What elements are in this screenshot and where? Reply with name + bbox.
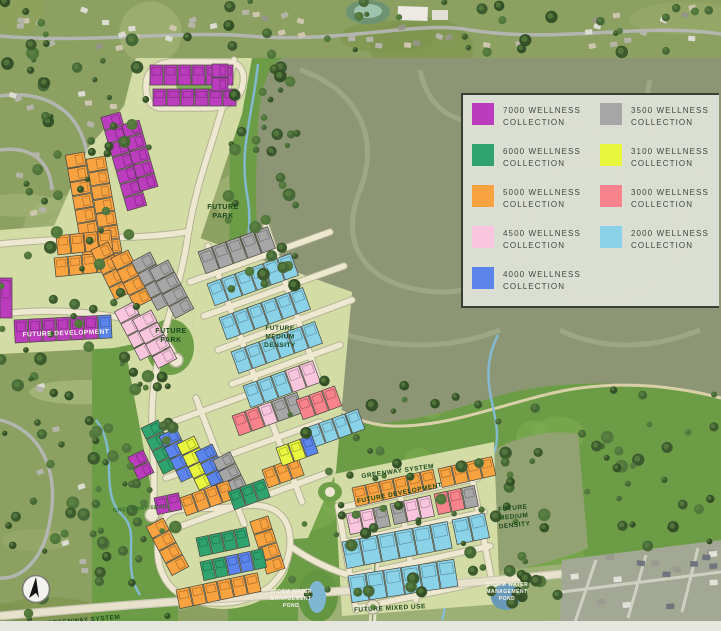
legend-label: COLLECTION [503,281,581,293]
legend-label: COLLECTION [503,199,581,211]
legend-label: 3100 WELLNESS [631,146,709,158]
legend-swatch-3000 [600,185,622,207]
legend-label: COLLECTION [503,158,581,170]
legend-item-2000: 2000 WELLNESSCOLLECTION [600,226,719,267]
legend-swatch-2000 [600,226,622,248]
bottom-margin [0,621,721,631]
legend-label: COLLECTION [503,117,581,129]
legend-label: 7000 WELLNESS [503,105,581,117]
legend-panel: 7000 WELLNESSCOLLECTION 6000 WELLNESSCOL… [461,93,719,308]
legend-label: COLLECTION [503,240,581,252]
legend-item-3100: 3100 WELLNESSCOLLECTION [600,144,719,185]
legend-swatch-3100 [600,144,622,166]
legend-item-4500: 4500 WELLNESSCOLLECTION [472,226,600,267]
map-label: FUTUREMEDIUMDENSITY [497,503,531,530]
legend-item-4000: 4000 WELLNESSCOLLECTION [472,267,600,308]
legend-label: 3000 WELLNESS [631,187,709,199]
legend-label: 4500 WELLNESS [503,228,581,240]
legend-swatch-4000 [472,267,494,289]
legend-swatch-3500 [600,103,622,125]
legend-swatch-5000 [472,185,494,207]
legend-swatch-7000 [472,103,494,125]
legend-label: 4000 WELLNESS [503,269,581,281]
north-arrow-icon [20,573,52,605]
legend-label: COLLECTION [631,158,709,170]
legend-label: 5000 WELLNESS [503,187,581,199]
legend-item-7000: 7000 WELLNESSCOLLECTION [472,103,600,144]
legend-label: 3500 WELLNESS [631,105,709,117]
legend-swatch-6000 [472,144,494,166]
legend-label: 2000 WELLNESS [631,228,709,240]
legend-label: 6000 WELLNESS [503,146,581,158]
legend-label: COLLECTION [631,240,709,252]
legend-label: COLLECTION [631,117,709,129]
legend-item-6000: 6000 WELLNESSCOLLECTION [472,144,600,185]
legend-item-5000: 5000 WELLNESSCOLLECTION [472,185,600,226]
legend-label: COLLECTION [631,199,709,211]
legend-item-3500: 3500 WELLNESSCOLLECTION [600,103,719,144]
master-plan-screenshot: FUTUREPARKFUTUREPARKFUTUREMEDIUMDENSITYF… [0,0,721,631]
map-label: FUTUREMEDIUMDENSITY [264,325,296,349]
legend-swatch-4500 [472,226,494,248]
legend-item-3000: 3000 WELLNESSCOLLECTION [600,185,719,226]
